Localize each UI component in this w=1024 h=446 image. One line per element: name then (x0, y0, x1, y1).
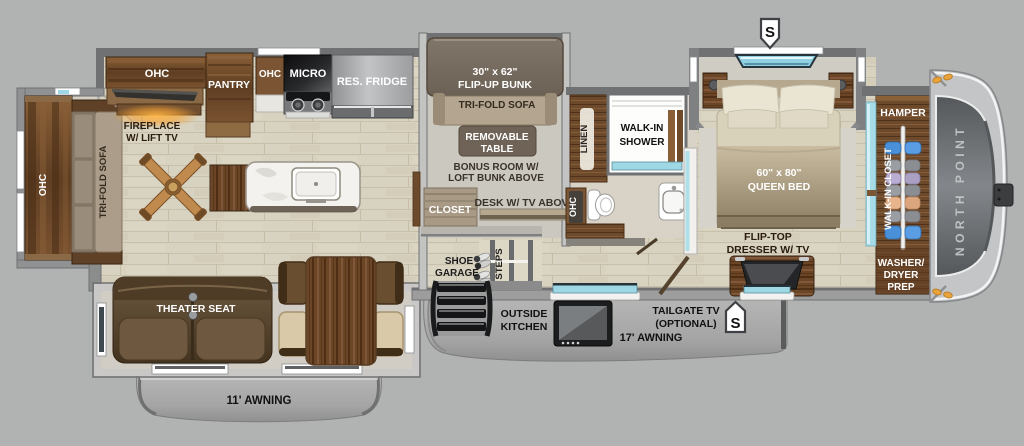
svg-text:DRYER: DRYER (884, 270, 919, 281)
svg-text:MICRO: MICRO (290, 68, 327, 80)
svg-text:CLOSET: CLOSET (429, 204, 472, 216)
svg-text:FIREPLACE: FIREPLACE (124, 121, 181, 132)
svg-text:HAMPER: HAMPER (880, 107, 926, 119)
svg-text:RES. FRIDGE: RES. FRIDGE (337, 76, 407, 88)
svg-text:OHC: OHC (38, 174, 49, 196)
svg-text:30" x 62": 30" x 62" (473, 66, 518, 78)
svg-text:BONUS ROOM W/: BONUS ROOM W/ (454, 162, 539, 173)
svg-text:S: S (765, 24, 775, 41)
svg-text:TRI-FOLD SOFA: TRI-FOLD SOFA (459, 100, 536, 111)
svg-text:LINEN: LINEN (579, 125, 590, 154)
svg-text:OHC: OHC (568, 197, 578, 218)
svg-text:GARAGE: GARAGE (435, 268, 479, 279)
svg-text:OHC: OHC (145, 68, 170, 80)
svg-text:TAILGATE TV: TAILGATE TV (652, 305, 719, 317)
svg-text:SHOWER: SHOWER (620, 137, 666, 148)
svg-text:STEPS: STEPS (494, 248, 505, 279)
svg-text:60" x 80": 60" x 80" (757, 167, 802, 179)
svg-text:THEATER SEAT: THEATER SEAT (157, 303, 237, 315)
svg-text:W/ LIFT TV: W/ LIFT TV (126, 133, 178, 144)
svg-text:FLIP-UP BUNK: FLIP-UP BUNK (458, 79, 532, 91)
svg-text:QUEEN BED: QUEEN BED (748, 181, 811, 193)
svg-text:KITCHEN: KITCHEN (501, 321, 548, 333)
svg-text:S: S (730, 315, 740, 332)
svg-text:TABLE: TABLE (481, 144, 514, 155)
svg-text:REMOVABLE: REMOVABLE (465, 132, 528, 143)
svg-text:PANTRY: PANTRY (208, 79, 250, 91)
svg-text:NORTH POINT: NORTH POINT (953, 124, 967, 256)
svg-text:WALK-IN CLOSET: WALK-IN CLOSET (883, 148, 894, 230)
svg-text:17' AWNING: 17' AWNING (620, 332, 683, 344)
svg-text:SHOE: SHOE (445, 256, 474, 267)
svg-text:LOFT BUNK ABOVE: LOFT BUNK ABOVE (448, 173, 544, 184)
svg-text:DRESSER W/ TV: DRESSER W/ TV (727, 244, 810, 256)
svg-text:WASHER/: WASHER/ (878, 258, 925, 269)
svg-text:TRI-FOLD SOFA: TRI-FOLD SOFA (98, 145, 109, 218)
svg-text:OHC: OHC (259, 69, 281, 80)
svg-text:OUTSIDE: OUTSIDE (501, 308, 548, 320)
svg-text:WALK-IN: WALK-IN (621, 123, 664, 134)
svg-text:PREP: PREP (887, 282, 915, 293)
svg-text:(OPTIONAL): (OPTIONAL) (655, 318, 716, 330)
svg-text:11' AWNING: 11' AWNING (227, 395, 292, 407)
svg-text:DESK W/ TV ABOVE: DESK W/ TV ABOVE (474, 197, 575, 209)
svg-text:FLIP-TOP: FLIP-TOP (744, 231, 792, 243)
